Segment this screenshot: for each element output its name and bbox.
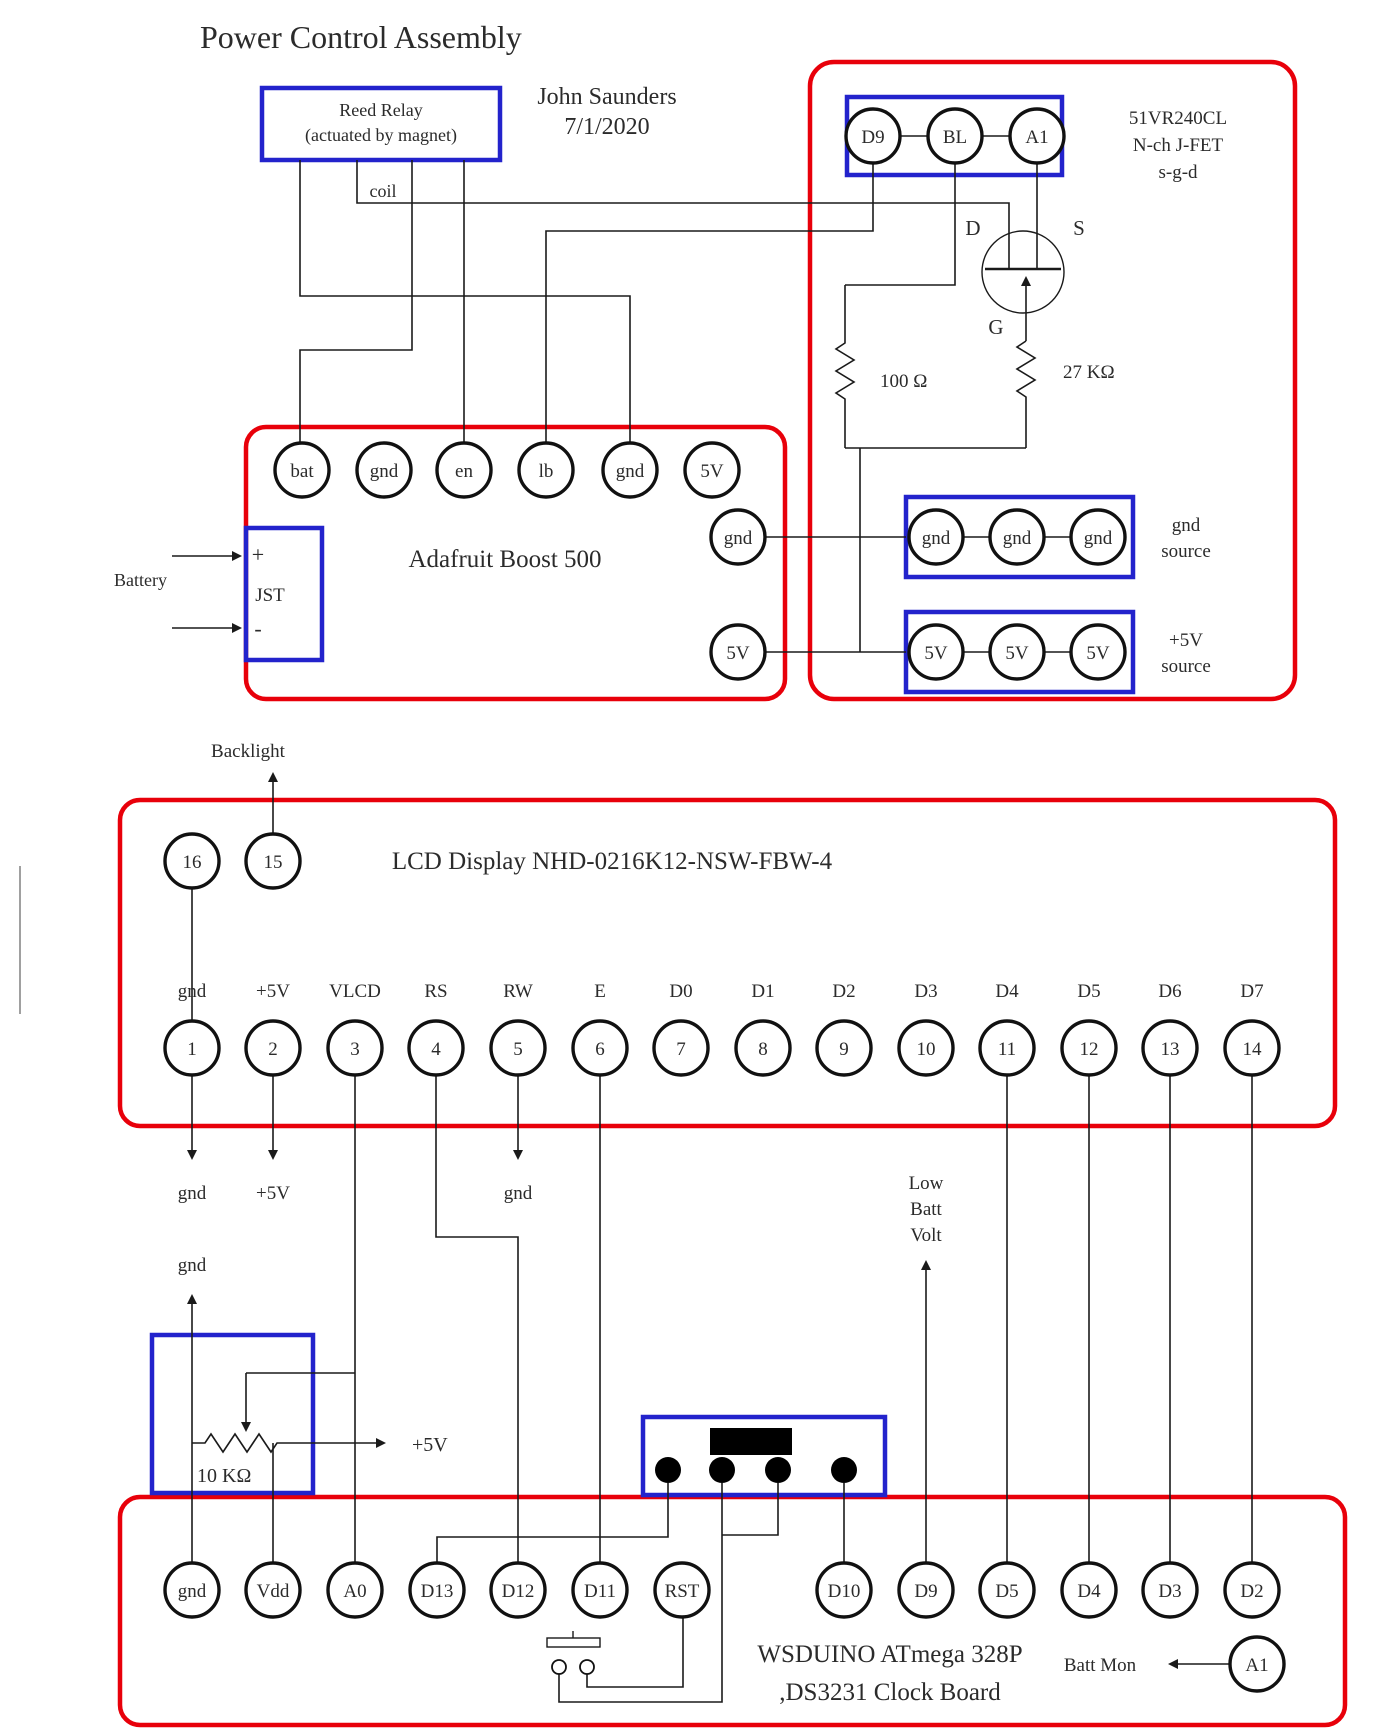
schematic-page: D9 BL A1 bat gnd en lb gnd 5V gnd 5V gnd… xyxy=(0,0,1377,1731)
clock-module-pads xyxy=(655,1457,857,1483)
signal-rs: RS xyxy=(424,981,447,1002)
low-batt-label-2: Batt xyxy=(910,1199,942,1220)
resistor-100-label: 100 Ω xyxy=(880,371,927,392)
v5-source-pin-3-label: 5V xyxy=(1086,643,1110,664)
lcd-pin-12: 12 xyxy=(1062,1021,1116,1075)
pot-gnd-label: gnd xyxy=(178,1255,207,1276)
clock-pad-3 xyxy=(765,1457,791,1483)
pin-d9-label: D9 xyxy=(861,127,884,148)
lcd-pin-10: 10 xyxy=(899,1021,953,1075)
boost-right-pins: gnd 5V xyxy=(711,510,765,679)
signal-d2: D2 xyxy=(832,981,855,1002)
gnd-source-pin-1: gnd xyxy=(909,510,963,564)
board-pin-d2-label: D2 xyxy=(1240,1581,1263,1602)
fet-type: N-ch J-FET xyxy=(1133,135,1224,156)
reset-button-terminal-right xyxy=(580,1660,594,1674)
clock-pad-4 xyxy=(831,1457,857,1483)
pin-en-label: en xyxy=(455,461,473,482)
boost-top-pins: bat gnd en lb gnd 5V xyxy=(275,443,739,497)
lcd-pin-11: 11 xyxy=(980,1021,1034,1075)
board-pin-d4: D4 xyxy=(1062,1563,1116,1617)
lcd-pin-1-label: 1 xyxy=(187,1039,197,1060)
pin-5v-top: 5V xyxy=(685,443,739,497)
v5-source-pin-1: 5V xyxy=(909,625,963,679)
board-pin-vdd-label: Vdd xyxy=(257,1581,290,1602)
gnd-source-label-1: gnd xyxy=(1172,515,1201,536)
clock-pad-2 xyxy=(709,1457,735,1483)
lcd-pin-2: 2 xyxy=(246,1021,300,1075)
board-pin-d5-label: D5 xyxy=(995,1581,1018,1602)
signal-e: E xyxy=(594,981,606,1002)
pin-gnd2-label: gnd xyxy=(616,461,645,482)
fet-gate-label: G xyxy=(988,315,1003,339)
board-pin-d12: D12 xyxy=(491,1563,545,1617)
board-pin-d4-label: D4 xyxy=(1077,1581,1101,1602)
board-pin-a0: A0 xyxy=(328,1563,382,1617)
pin1-gnd-label: gnd xyxy=(178,1183,207,1204)
reed-relay-box xyxy=(262,88,500,160)
pin-lb: lb xyxy=(519,443,573,497)
board-pin-rst: RST xyxy=(655,1563,709,1617)
jst-label: JST xyxy=(255,585,285,606)
gnd-source-pin-1-label: gnd xyxy=(922,528,951,549)
boost-name: Adafruit Boost 500 xyxy=(408,546,601,573)
batt-mon-label: Batt Mon xyxy=(1064,1655,1137,1676)
pin-d9: D9 xyxy=(846,109,900,163)
pin-gnd-1: gnd xyxy=(357,443,411,497)
relay-label-line1: Reed Relay xyxy=(339,100,422,120)
lcd-pin-5-label: 5 xyxy=(513,1039,523,1060)
v5-source-pin-3: 5V xyxy=(1071,625,1125,679)
pin-bat-label: bat xyxy=(290,461,314,482)
board-name-line1: WSDUINO ATmega 328P xyxy=(757,1641,1022,1668)
low-batt-label-1: Low xyxy=(909,1173,944,1194)
battery-label: Battery xyxy=(114,570,167,590)
wire-bl-to-resistor xyxy=(845,163,955,285)
board-pin-d9-label: D9 xyxy=(914,1581,937,1602)
v5-source-pin-1-label: 5V xyxy=(924,643,948,664)
signal-d7: D7 xyxy=(1240,981,1263,1002)
board-pin-d2: D2 xyxy=(1225,1563,1279,1617)
clock-pad-1 xyxy=(655,1457,681,1483)
lcd-pin-4: 4 xyxy=(409,1021,463,1075)
lcd-pin-6-label: 6 xyxy=(595,1039,605,1060)
pin-gnd1-label: gnd xyxy=(370,461,399,482)
fet-pinout: s-g-d xyxy=(1158,162,1198,183)
board-pin-d11: D11 xyxy=(573,1563,627,1617)
pin-bl-label: BL xyxy=(943,127,967,148)
reset-button-terminal-left xyxy=(552,1660,566,1674)
board-pin-d13: D13 xyxy=(410,1563,464,1617)
v5-source-pin-2-label: 5V xyxy=(1005,643,1029,664)
fet-body-circle xyxy=(982,231,1064,313)
pin-gnd-right: gnd xyxy=(711,510,765,564)
lcd-pin-4-label: 4 xyxy=(431,1039,441,1060)
signal-d6: D6 xyxy=(1158,981,1181,1002)
v5-source-label-1: +5V xyxy=(1169,630,1203,651)
wire-d9-to-lb xyxy=(546,163,873,443)
gnd-source-pins: gnd gnd gnd xyxy=(909,510,1125,564)
pin-5v-right: 5V xyxy=(711,625,765,679)
lcd-pin-1: 1 xyxy=(165,1021,219,1075)
gnd-source-pin-2: gnd xyxy=(990,510,1044,564)
board-pin-a1: A1 xyxy=(1230,1637,1284,1691)
lcd-pin-14-label: 14 xyxy=(1243,1039,1263,1060)
board-pin-gnd-label: gnd xyxy=(178,1581,207,1602)
power-control-schematic: D9 BL A1 bat gnd en lb gnd 5V gnd 5V gnd… xyxy=(0,0,1377,1731)
lcd-pin-6: 6 xyxy=(573,1021,627,1075)
pin-lb-label: lb xyxy=(539,461,554,482)
pot-value-label: 10 KΩ xyxy=(197,1465,251,1487)
reset-button-cap xyxy=(547,1638,600,1647)
author-name: John Saunders xyxy=(537,84,676,110)
resistor-10k xyxy=(192,1434,285,1452)
gnd-source-pin-2-label: gnd xyxy=(1003,528,1032,549)
pin-a1-top-label: A1 xyxy=(1025,127,1048,148)
wire-rst-to-button xyxy=(587,1618,683,1687)
pin-en: en xyxy=(437,443,491,497)
v5-source-pin-2: 5V xyxy=(990,625,1044,679)
signal-rw: RW xyxy=(503,981,533,1002)
page-title: Power Control Assembly xyxy=(200,19,522,55)
board-pin-d3-label: D3 xyxy=(1158,1581,1181,1602)
pot-5v-label: +5V xyxy=(412,1434,448,1456)
lcd-pin-11-label: 11 xyxy=(998,1039,1016,1060)
lcd-pin-3-label: 3 xyxy=(350,1039,360,1060)
lcd-pin-10-label: 10 xyxy=(917,1039,936,1060)
pin-gnd-2: gnd xyxy=(603,443,657,497)
wire-rs-to-d12 xyxy=(436,1075,518,1563)
board-pin-d10: D10 xyxy=(817,1563,871,1617)
board-pin-d3: D3 xyxy=(1143,1563,1197,1617)
board-pin-d12-label: D12 xyxy=(502,1581,535,1602)
gnd-source-pin-3: gnd xyxy=(1071,510,1125,564)
coil-label: coil xyxy=(370,181,397,201)
signal-d0: D0 xyxy=(669,981,692,1002)
backlight-label: Backlight xyxy=(211,741,286,762)
signal-d1: D1 xyxy=(751,981,774,1002)
lcd-top-pins: 16 15 xyxy=(165,834,300,888)
v5-source-label-2: source xyxy=(1161,656,1211,677)
pin-bat: bat xyxy=(275,443,329,497)
low-batt-label-3: Volt xyxy=(910,1225,942,1246)
board-pin-a1-label: A1 xyxy=(1245,1655,1268,1676)
jst-minus-label: - xyxy=(254,616,261,641)
lcd-pin-5: 5 xyxy=(491,1021,545,1075)
signal-gnd: gnd xyxy=(178,981,207,1002)
lcd-pin-9: 9 xyxy=(817,1021,871,1075)
signal-d5: D5 xyxy=(1077,981,1100,1002)
signal-d4: D4 xyxy=(995,981,1019,1002)
lcd-pin-15: 15 xyxy=(246,834,300,888)
board-pin-d13-label: D13 xyxy=(421,1581,454,1602)
pin-gnd-right-label: gnd xyxy=(724,528,753,549)
lcd-pin-13-label: 13 xyxy=(1161,1039,1180,1060)
board-pin-d5: D5 xyxy=(980,1563,1034,1617)
wire-clock3-junction xyxy=(722,1483,778,1535)
pin-a1-top: A1 xyxy=(1010,109,1064,163)
lcd-pin-7-label: 7 xyxy=(676,1039,686,1060)
author-date: 7/1/2020 xyxy=(564,114,649,140)
lcd-pin-14: 14 xyxy=(1225,1021,1279,1075)
lcd-pin-8: 8 xyxy=(736,1021,790,1075)
pin-5v-top-label: 5V xyxy=(700,461,724,482)
fet-drain-label: D xyxy=(965,216,980,240)
signal-vlcd: VLCD xyxy=(329,981,381,1002)
resistor-100 xyxy=(836,285,854,448)
board-pin-gnd: gnd xyxy=(165,1563,219,1617)
resistor-27k xyxy=(1017,341,1035,448)
fet-part-number: 51VR240CL xyxy=(1129,108,1227,129)
board-pin-vdd: Vdd xyxy=(246,1563,300,1617)
board-pin-d9: D9 xyxy=(899,1563,953,1617)
lcd-pin-2-label: 2 xyxy=(268,1039,278,1060)
jst-plus-label: + xyxy=(252,542,264,567)
v5-source-pins: 5V 5V 5V xyxy=(909,625,1125,679)
lcd-pin-16-label: 16 xyxy=(183,852,202,873)
lcd-pin-8-label: 8 xyxy=(758,1039,768,1060)
pin-bl: BL xyxy=(928,109,982,163)
board-pin-a0-label: A0 xyxy=(343,1581,366,1602)
lcd-pin-16: 16 xyxy=(165,834,219,888)
pin5-gnd-label: gnd xyxy=(504,1183,533,1204)
lcd-pin-15-label: 15 xyxy=(264,852,283,873)
board-pin-rst-label: RST xyxy=(665,1581,700,1602)
signal-5v: +5V xyxy=(256,981,290,1002)
gnd-source-label-2: source xyxy=(1161,541,1211,562)
lcd-name: LCD Display NHD-0216K12-NSW-FBW-4 xyxy=(392,848,833,875)
fet-source-label: S xyxy=(1073,216,1085,240)
signal-d3: D3 xyxy=(914,981,937,1002)
relay-label-line2: (actuated by magnet) xyxy=(305,125,457,146)
pin2-5v-label: +5V xyxy=(256,1183,290,1204)
gnd-source-pin-3-label: gnd xyxy=(1084,528,1113,549)
pin-5v-right-label: 5V xyxy=(726,643,750,664)
resistor-27k-label: 27 KΩ xyxy=(1063,362,1115,383)
board-name-line2: ,DS3231 Clock Board xyxy=(779,1679,1001,1706)
fet-header-pins: D9 BL A1 xyxy=(846,109,1064,163)
clock-module-chip xyxy=(710,1428,792,1455)
lcd-number-pins: 1 2 3 4 5 6 7 8 9 10 11 12 13 14 xyxy=(165,1021,1279,1075)
lcd-pin-9-label: 9 xyxy=(839,1039,849,1060)
lcd-pin-3: 3 xyxy=(328,1021,382,1075)
lcd-pin-12-label: 12 xyxy=(1080,1039,1099,1060)
lcd-pin-7: 7 xyxy=(654,1021,708,1075)
lcd-signal-labels: gnd +5V VLCD RS RW E D0 D1 D2 D3 D4 D5 D… xyxy=(178,981,1264,1002)
lcd-pin-13: 13 xyxy=(1143,1021,1197,1075)
board-pin-d11-label: D11 xyxy=(584,1581,616,1602)
board-pin-d10-label: D10 xyxy=(828,1581,861,1602)
